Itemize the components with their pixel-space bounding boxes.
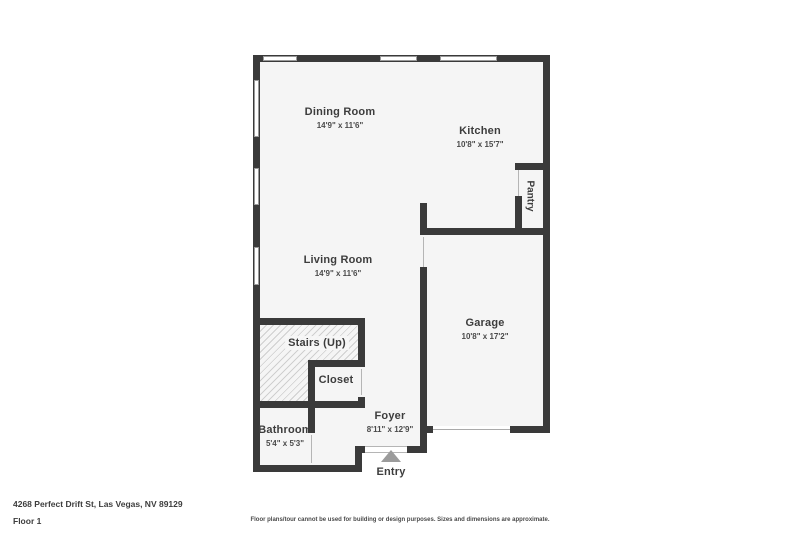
room-label-dining: Dining Room bbox=[305, 106, 376, 118]
room-label-foyer: Foyer bbox=[375, 410, 406, 422]
room-label-pantry: Pantry bbox=[525, 180, 536, 211]
wall-garage-bottom-right bbox=[510, 426, 550, 433]
room-label-kitchen: Kitchen bbox=[459, 125, 501, 137]
wall-foyer-bottom-right bbox=[407, 446, 427, 453]
window-left-1 bbox=[254, 80, 259, 137]
room-dims-dining: 14'9" x 11'6" bbox=[317, 121, 364, 130]
garage-vehicle-door bbox=[433, 426, 510, 433]
room-dims-kitchen: 10'8" x 15'7" bbox=[457, 140, 504, 149]
wall-kitchen-stub bbox=[420, 203, 427, 228]
floor-plan-page: Dining Room 14'9" x 11'6" Kitchen 10'8" … bbox=[0, 0, 800, 533]
room-dims-bathroom: 5'4" x 5'3" bbox=[266, 439, 304, 448]
door-pantry bbox=[518, 170, 519, 196]
wall-garage-left bbox=[420, 267, 427, 453]
disclaimer-text: Floor plans/tour cannot be used for buil… bbox=[250, 517, 549, 523]
wall-pantry-top bbox=[515, 163, 550, 170]
wall-closet-top bbox=[308, 360, 365, 367]
window-top-1 bbox=[263, 56, 297, 61]
window-top-3 bbox=[440, 56, 497, 61]
property-address: 4268 Perfect Drift St, Las Vegas, NV 891… bbox=[13, 499, 183, 509]
door-living-garage bbox=[423, 237, 424, 267]
room-dims-living: 14'9" x 11'6" bbox=[315, 269, 362, 278]
room-label-stairs: Stairs (Up) bbox=[285, 336, 349, 350]
wall-kitchen-garage bbox=[420, 228, 550, 235]
room-label-closet: Closet bbox=[319, 374, 354, 386]
window-left-3 bbox=[254, 247, 259, 285]
room-label-living: Living Room bbox=[304, 254, 373, 266]
floor-label: Floor 1 bbox=[13, 516, 41, 526]
room-label-bathroom: Bathroom bbox=[258, 424, 312, 436]
entry-arrow-icon bbox=[381, 450, 401, 462]
door-bathroom bbox=[311, 435, 312, 463]
room-dims-foyer: 8'11" x 12'9" bbox=[367, 425, 414, 434]
garage-door-line bbox=[433, 429, 510, 430]
wall-outer-right bbox=[543, 55, 550, 433]
wall-bathroom-bottom bbox=[253, 465, 362, 472]
window-left-2 bbox=[254, 168, 259, 205]
room-dims-garage: 10'8" x 17'2" bbox=[462, 332, 509, 341]
room-label-garage: Garage bbox=[465, 317, 504, 329]
wall-stairs-top bbox=[253, 318, 365, 325]
bathroom-floor-area bbox=[256, 404, 358, 469]
wall-pantry-left bbox=[515, 196, 522, 235]
window-top-2 bbox=[380, 56, 417, 61]
wall-stairs-closet-bottom bbox=[253, 401, 365, 408]
door-closet bbox=[361, 369, 362, 395]
entry-label: Entry bbox=[376, 466, 405, 478]
